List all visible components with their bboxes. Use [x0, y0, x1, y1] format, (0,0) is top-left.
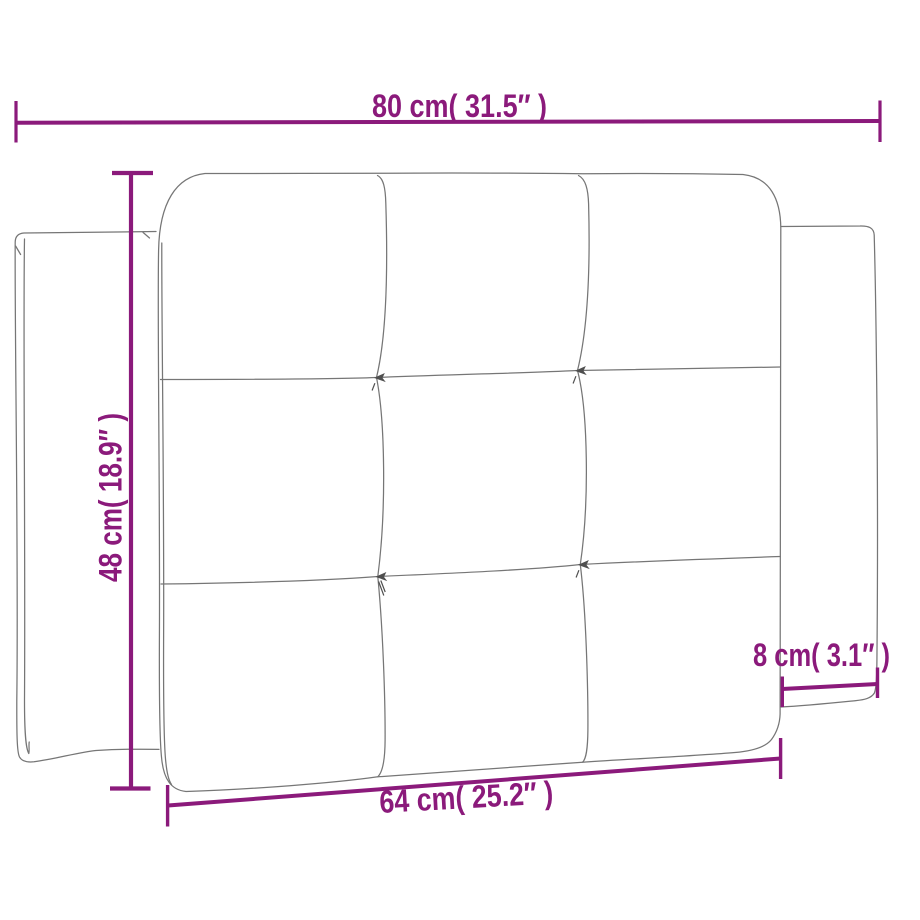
- svg-text:8 cm( 3.1″ ): 8 cm( 3.1″ ): [753, 637, 890, 673]
- svg-text:48 cm( 18.9″ ): 48 cm( 18.9″ ): [93, 413, 129, 582]
- svg-text:80 cm( 31.5″ ): 80 cm( 31.5″ ): [372, 88, 547, 124]
